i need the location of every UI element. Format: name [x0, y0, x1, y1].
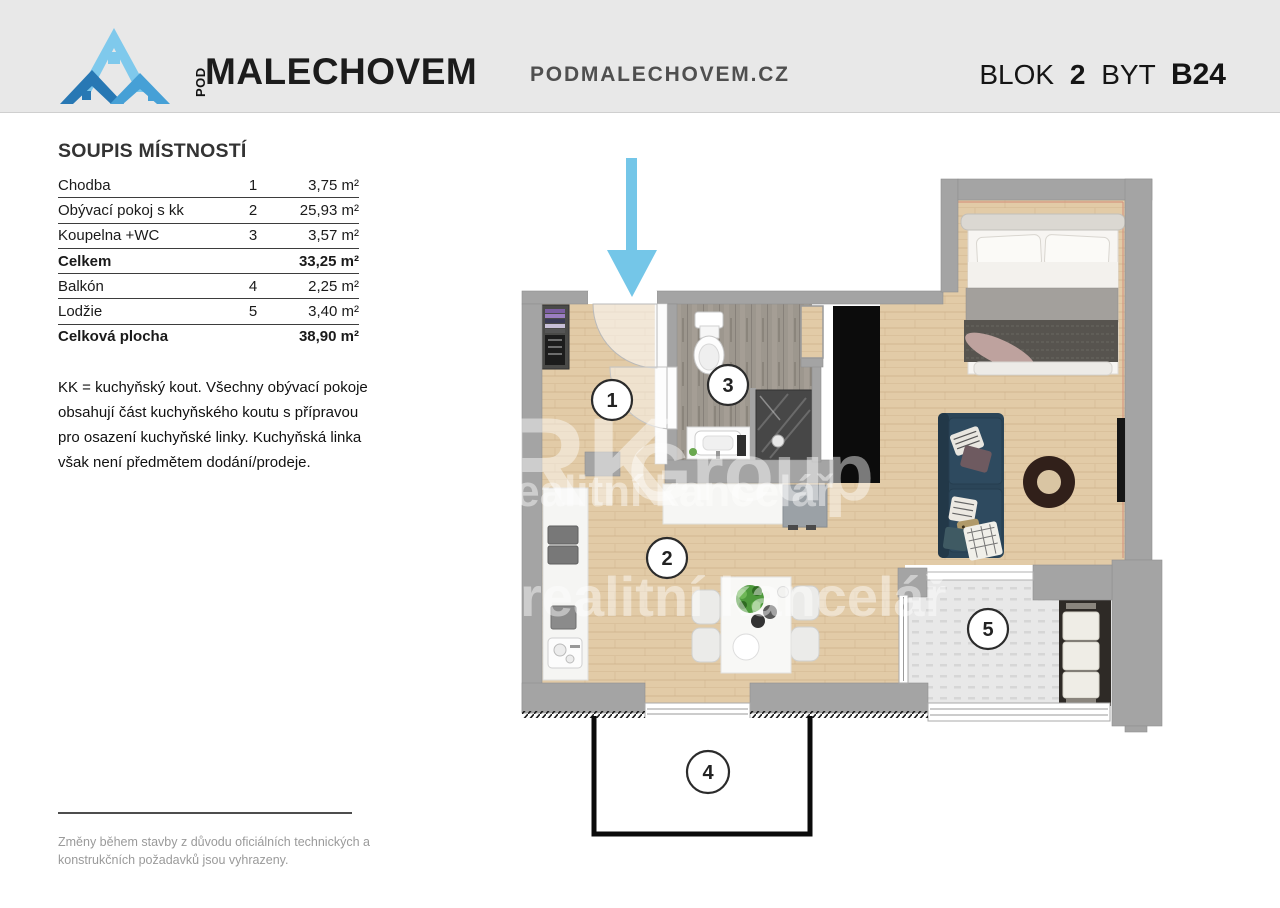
logo-window-large — [108, 52, 120, 64]
wall-hatch — [522, 711, 645, 718]
floor-plan: RK Group realitní kancelář realitní kanc… — [500, 140, 1190, 855]
entrance-opening — [588, 291, 657, 304]
byt-label: BYT — [1101, 59, 1155, 90]
blok-value: 2 — [1070, 59, 1086, 90]
logo-window-left — [82, 91, 91, 100]
room-name: Celkem — [58, 253, 111, 270]
room-number: 5 — [238, 303, 268, 320]
loggia-glazing — [928, 703, 1110, 721]
chair — [692, 628, 720, 662]
table-row: Chodba 1 3,75 m² — [58, 173, 359, 198]
byt-value: B24 — [1171, 58, 1226, 91]
badge-lodzie: 5 — [968, 609, 1008, 649]
bed — [960, 214, 1125, 379]
watermark-subtitle: realitní kancelář — [500, 467, 834, 516]
room-area: 3,40 m² — [308, 303, 359, 320]
svg-text:2: 2 — [661, 548, 672, 570]
brand-logo-icon — [52, 20, 182, 108]
chair — [791, 627, 819, 661]
room-list-table: Chodba 1 3,75 m² Obývací pokoj s kk 2 25… — [58, 173, 359, 349]
logo-roof-right — [110, 73, 170, 104]
page: POD MALECHOVEM PODMALECHOVEM.CZ BLOK 2 B… — [0, 0, 1280, 908]
footer-divider — [58, 812, 352, 814]
table-row-grand-total: Celková plocha 38,90 m² — [58, 325, 359, 349]
room-number: 2 — [238, 202, 268, 219]
sofa — [938, 413, 1004, 561]
badge-koupelna: 3 — [708, 365, 748, 405]
svg-text:4: 4 — [702, 762, 714, 784]
table-row: Koupelna +WC 3 3,57 m² — [58, 224, 359, 249]
wardrobe — [541, 305, 569, 369]
badge-chodba: 1 — [592, 380, 632, 420]
badge-balkon: 4 — [687, 751, 729, 793]
room-number: 4 — [238, 278, 268, 295]
unit-identifier: BLOK 2 BYT B24 — [971, 58, 1226, 92]
room-list-title: SOUPIS MÍSTNOSTÍ — [58, 140, 246, 163]
balcony-door — [645, 703, 750, 720]
table-row: Lodžie 5 3,40 m² — [58, 299, 359, 324]
room-name: Balkón — [58, 278, 104, 295]
blanket — [966, 288, 1118, 322]
room-area: 3,57 m² — [308, 227, 359, 244]
svg-text:1: 1 — [606, 390, 617, 412]
room-area: 2,25 m² — [308, 278, 359, 295]
svg-text:3: 3 — [722, 375, 733, 397]
footer-disclaimer: Změny během stavby z důvodu oficiálních … — [58, 833, 370, 870]
room-area: 38,90 m² — [299, 328, 359, 345]
room-name: Obývací pokoj s kk — [58, 202, 184, 219]
wall-hatch — [750, 711, 928, 718]
table-row: Balkón 4 2,25 m² — [58, 274, 359, 299]
kk-note: KK = kuchyňský kout. Všechny obývací pok… — [58, 375, 380, 475]
headboard — [961, 214, 1125, 230]
header-bar: POD MALECHOVEM PODMALECHOVEM.CZ BLOK 2 B… — [0, 0, 1280, 113]
loggia-shelf — [1059, 600, 1111, 706]
brand-name-text: MALECHOVEM — [205, 51, 477, 93]
table-row: Obývací pokoj s kk 2 25,93 m² — [58, 198, 359, 223]
room-name: Celková plocha — [58, 328, 168, 345]
website-text: PODMALECHOVEM.CZ — [530, 63, 790, 87]
table-row-total: Celkem 33,25 m² — [58, 249, 359, 274]
plate — [733, 634, 759, 660]
room-name: Lodžie — [58, 303, 102, 320]
tv-panel — [1117, 418, 1125, 502]
entrance-arrow-icon — [607, 158, 657, 297]
room-area: 25,93 m² — [300, 202, 359, 219]
room-name: Koupelna +WC — [58, 227, 159, 244]
svg-text:5: 5 — [982, 619, 993, 641]
bathroom-niche — [801, 306, 823, 358]
logo-window-right — [148, 92, 157, 101]
badge-obyvaci-pokoj: 2 — [647, 538, 687, 578]
blok-label: BLOK — [979, 59, 1054, 90]
toilet — [694, 312, 724, 374]
round-rug — [1023, 456, 1075, 508]
room-area: 33,25 m² — [299, 253, 359, 270]
room-number: 1 — [238, 177, 268, 194]
room-name: Chodba — [58, 177, 111, 194]
room-area: 3,75 m² — [308, 177, 359, 194]
watermark-subtitle: realitní kancelář — [520, 565, 947, 628]
room-number: 3 — [238, 227, 268, 244]
